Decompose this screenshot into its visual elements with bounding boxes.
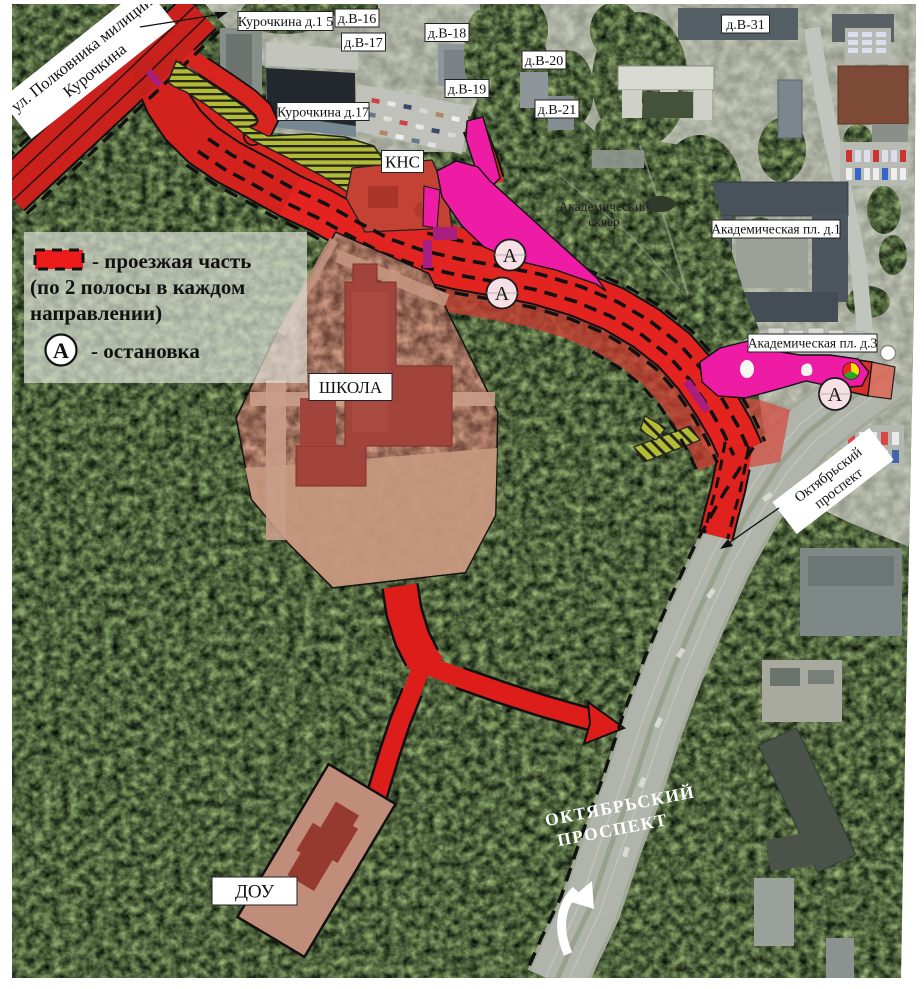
svg-text:направлении): направлении)	[30, 301, 162, 325]
svg-text:ШКОЛА: ШКОЛА	[319, 378, 383, 397]
svg-text:д.В-17: д.В-17	[344, 36, 383, 51]
svg-text:А: А	[503, 245, 518, 267]
svg-text:КНС: КНС	[385, 152, 420, 171]
svg-text:- проезжая часть: - проезжая часть	[92, 249, 251, 273]
svg-text:д.В-31: д.В-31	[726, 18, 765, 33]
svg-text:А: А	[495, 283, 510, 305]
svg-text:д.В-16: д.В-16	[338, 12, 377, 27]
svg-text:Академический: Академический	[559, 199, 650, 214]
svg-text:Курочкина д.17: Курочкина д.17	[277, 105, 369, 120]
svg-text:А: А	[53, 338, 69, 363]
svg-text:сквер: сквер	[588, 214, 620, 229]
svg-text:д.В-18: д.В-18	[428, 26, 467, 41]
svg-text:- остановка: - остановка	[91, 339, 200, 363]
svg-text:Курочкина д.1 5: Курочкина д.1 5	[238, 15, 334, 30]
svg-text:д.В-21: д.В-21	[538, 103, 577, 118]
svg-text:д.В-19: д.В-19	[448, 82, 487, 97]
svg-text:(по 2 полосы в каждом: (по 2 полосы в каждом	[30, 275, 245, 299]
svg-text:д.В-20: д.В-20	[525, 54, 564, 69]
svg-text:Академическая пл. д.3: Академическая пл. д.3	[748, 336, 878, 351]
svg-text:ДОУ: ДОУ	[235, 882, 275, 903]
svg-text:А: А	[828, 384, 843, 406]
svg-text:Академическая пл. д.1: Академическая пл. д.1	[711, 222, 840, 237]
